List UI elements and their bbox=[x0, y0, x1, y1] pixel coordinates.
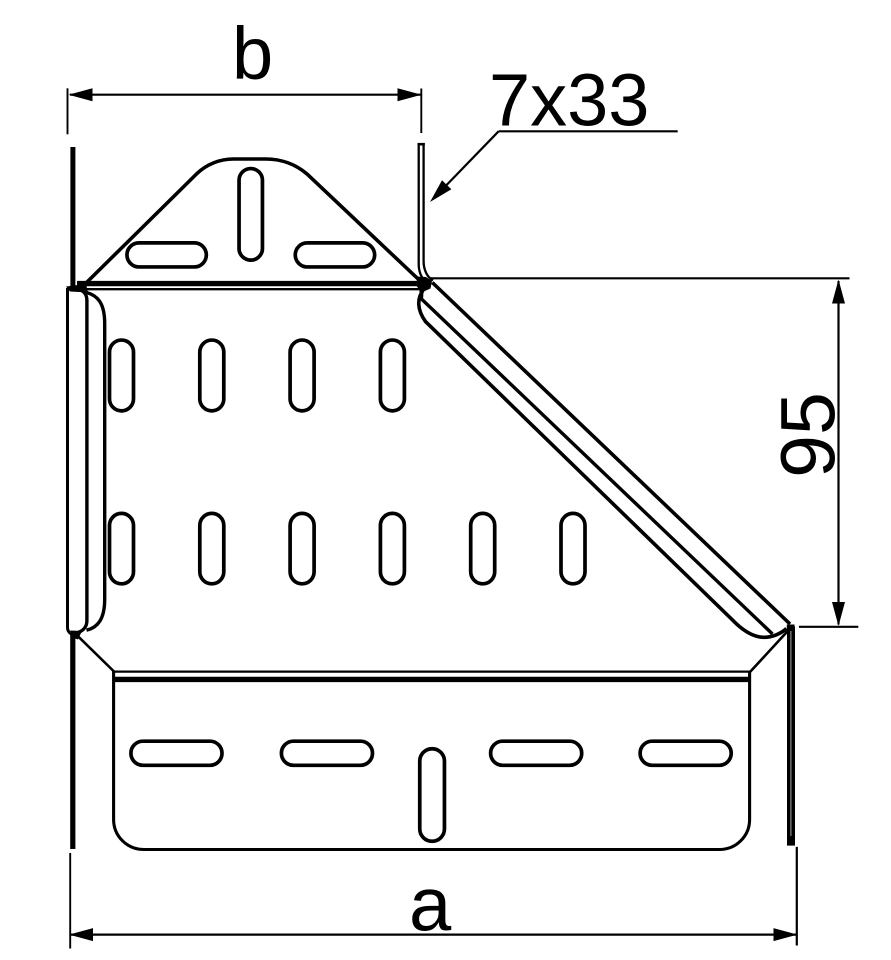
svg-text:b: b bbox=[232, 12, 273, 95]
svg-text:7x33: 7x33 bbox=[489, 59, 649, 142]
